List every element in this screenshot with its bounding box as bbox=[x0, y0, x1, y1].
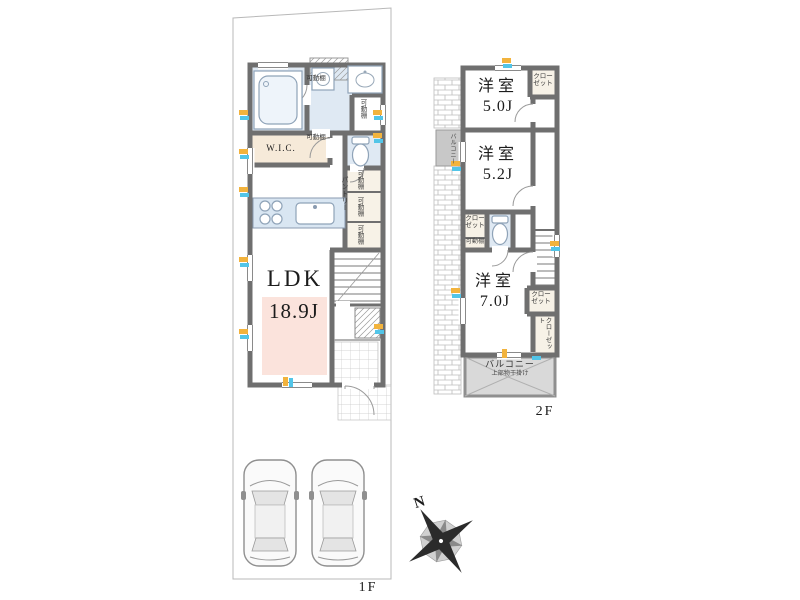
ldk-room-label: LDK bbox=[262, 267, 328, 292]
side-balcony-label: バルコニー bbox=[442, 133, 455, 165]
shelf-label-pantry1: 可動棚 bbox=[352, 170, 363, 194]
pantry-floor bbox=[345, 168, 383, 250]
room1-size: 5.0J bbox=[471, 98, 525, 115]
shelf-label-wash: 可動棚 bbox=[298, 75, 334, 82]
room2-name: 洋室 bbox=[471, 146, 525, 163]
closet-label-mid: クローゼット bbox=[464, 215, 486, 229]
entrance-tile bbox=[334, 342, 378, 383]
side-strip-upper bbox=[434, 78, 461, 128]
car-icon bbox=[309, 460, 367, 566]
room3-name: 洋室 bbox=[468, 273, 522, 290]
shelf-label-wic: 可動棚 bbox=[300, 134, 332, 141]
bathtub-icon bbox=[254, 71, 302, 129]
room1-name: 洋室 bbox=[471, 78, 525, 95]
room3-size: 7.0J bbox=[468, 293, 522, 310]
pantry-label: パントリー bbox=[336, 176, 348, 224]
porch-tile bbox=[338, 385, 391, 420]
shelf-label-pantry3: 可動棚 bbox=[352, 225, 363, 249]
floor2-label: 2F bbox=[529, 404, 561, 419]
floor1-label: 1F bbox=[352, 580, 384, 595]
ldk-size-label: 18.9J bbox=[260, 300, 328, 323]
closet-label-a: クローゼット bbox=[529, 291, 553, 305]
compass-rose bbox=[388, 488, 493, 593]
side-strip-lower bbox=[434, 166, 461, 394]
balcony-label: バルコニー bbox=[478, 360, 542, 370]
car-icon bbox=[241, 460, 299, 566]
wic-label: W.I.C. bbox=[256, 144, 306, 154]
floor-plan-page: LDK 18.9J W.I.C. 可動棚 可動棚 可動棚 パントリー 可動棚 可… bbox=[0, 0, 800, 600]
staircase-1f bbox=[334, 252, 381, 303]
shelf-label-right: 可動棚 bbox=[354, 99, 366, 131]
toilet-icon-2f bbox=[492, 216, 508, 245]
floor-plan-drawing bbox=[0, 0, 800, 600]
kitchen-counter bbox=[253, 198, 345, 228]
parking-cars bbox=[241, 460, 367, 566]
closet-label-b: クローゼット bbox=[539, 317, 551, 353]
room2-size: 5.2J bbox=[471, 166, 525, 183]
shelf-label-pantry2: 可動棚 bbox=[352, 197, 363, 221]
balcony-note-label: 上部物干掛け bbox=[478, 371, 542, 378]
shelf-label-2f: 可動棚 bbox=[461, 239, 489, 246]
closet-label-tr: クローゼット bbox=[531, 73, 555, 87]
washbasin-icon bbox=[348, 66, 382, 93]
toilet-icon-1f bbox=[352, 137, 369, 166]
floor1-plan bbox=[239, 58, 391, 420]
